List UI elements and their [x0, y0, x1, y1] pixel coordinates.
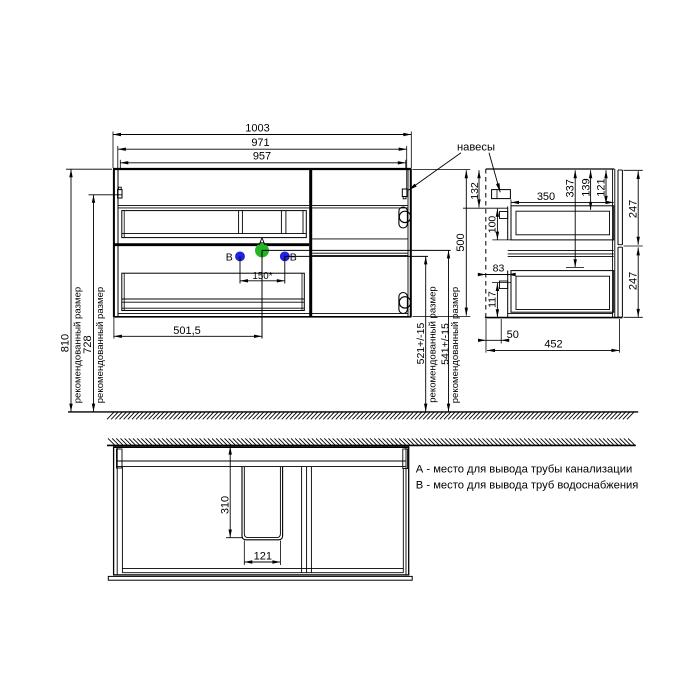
- svg-text:1003: 1003: [245, 122, 269, 134]
- svg-text:83: 83: [493, 262, 505, 274]
- svg-text:501,5: 501,5: [173, 325, 201, 337]
- svg-text:247: 247: [627, 200, 639, 218]
- svg-text:117: 117: [487, 291, 499, 308]
- svg-text:957: 957: [253, 151, 271, 163]
- svg-text:А - место для вывода трубы кан: А - место для вывода трубы канализации: [416, 463, 632, 475]
- svg-text:337: 337: [564, 179, 576, 197]
- svg-text:247: 247: [627, 272, 639, 290]
- svg-text:521+/-15: 521+/-15: [415, 322, 427, 364]
- svg-text:рекомендованный размер: рекомендованный размер: [427, 286, 438, 403]
- svg-text:728: 728: [82, 335, 94, 353]
- svg-text:810: 810: [60, 334, 72, 352]
- svg-text:100: 100: [487, 216, 499, 234]
- svg-text:рекомендованный размер: рекомендованный размер: [95, 287, 106, 404]
- svg-text:971: 971: [251, 137, 269, 149]
- svg-text:350: 350: [537, 191, 555, 203]
- svg-text:А: А: [258, 236, 265, 248]
- svg-text:310: 310: [219, 496, 231, 514]
- svg-text:В: В: [226, 251, 233, 263]
- svg-text:452: 452: [544, 339, 562, 351]
- svg-text:132: 132: [469, 182, 481, 200]
- svg-text:150*: 150*: [252, 271, 272, 282]
- svg-text:500: 500: [455, 233, 467, 251]
- svg-text:В - место для вывода труб водо: В - место для вывода труб водоснабжения: [416, 479, 639, 491]
- svg-text:50: 50: [507, 329, 519, 341]
- svg-text:139: 139: [580, 178, 592, 196]
- svg-text:В: В: [290, 251, 297, 263]
- svg-text:121: 121: [596, 178, 608, 196]
- svg-text:навесы: навесы: [457, 142, 495, 154]
- svg-text:рекомендованный размер: рекомендованный размер: [450, 287, 461, 404]
- svg-text:121: 121: [254, 551, 272, 563]
